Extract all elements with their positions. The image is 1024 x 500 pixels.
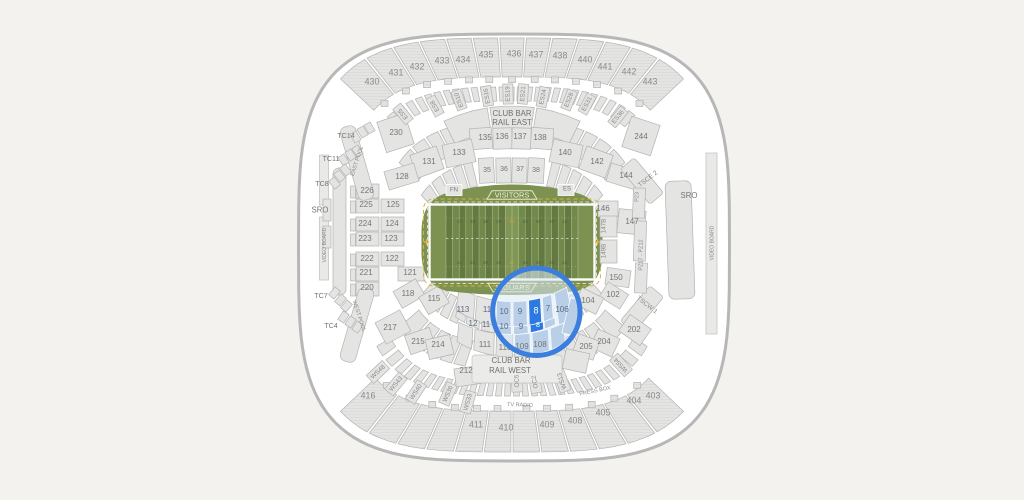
svg-text:409: 409	[540, 419, 555, 429]
svg-text:12: 12	[469, 319, 478, 328]
svg-text:20: 20	[470, 219, 476, 224]
svg-text:38: 38	[532, 167, 540, 174]
svg-text:VISITORS: VISITORS	[495, 191, 530, 200]
svg-text:411: 411	[469, 419, 483, 429]
svg-text:RAIL EAST: RAIL EAST	[492, 118, 532, 127]
svg-text:P23: P23	[634, 192, 640, 202]
svg-text:9: 9	[519, 322, 524, 331]
svg-text:223: 223	[358, 234, 372, 243]
svg-text:224: 224	[358, 219, 372, 228]
svg-text:443: 443	[643, 76, 658, 86]
svg-text:416: 416	[361, 390, 376, 400]
svg-text:10: 10	[500, 322, 509, 331]
svg-text:123: 123	[384, 234, 398, 243]
svg-text:102: 102	[606, 290, 620, 299]
svg-text:7: 7	[546, 304, 551, 313]
svg-text:202: 202	[627, 325, 641, 334]
svg-text:106: 106	[555, 305, 569, 314]
svg-text:SRO: SRO	[312, 206, 329, 215]
svg-text:147B: 147B	[601, 219, 608, 234]
svg-text:405: 405	[596, 407, 611, 417]
svg-text:149B: 149B	[601, 244, 608, 259]
svg-text:440: 440	[578, 54, 593, 64]
svg-text:436: 436	[507, 48, 522, 58]
svg-text:146: 146	[596, 204, 610, 213]
svg-text:10: 10	[562, 260, 568, 265]
svg-text:226: 226	[360, 186, 374, 195]
svg-text:408: 408	[568, 415, 583, 425]
svg-text:104: 104	[581, 296, 595, 305]
svg-text:ES19: ES19	[504, 86, 511, 102]
svg-text:118: 118	[402, 289, 415, 298]
svg-text:147: 147	[625, 217, 639, 226]
svg-text:215: 215	[411, 337, 425, 346]
svg-text:8: 8	[536, 322, 540, 329]
svg-text:10: 10	[457, 219, 463, 224]
svg-text:VIDEO BOARD: VIDEO BOARD	[322, 227, 328, 262]
svg-text:30: 30	[536, 219, 542, 224]
svg-text:230: 230	[389, 128, 403, 137]
svg-text:442: 442	[622, 66, 637, 76]
svg-text:204: 204	[597, 337, 611, 346]
svg-text:TC7: TC7	[314, 291, 328, 300]
svg-text:36: 36	[500, 166, 508, 173]
svg-text:144: 144	[619, 171, 633, 180]
svg-text:430: 430	[365, 76, 380, 86]
svg-text:PZ17 - PZ12: PZ17 - PZ12	[638, 239, 644, 270]
svg-text:205: 205	[579, 342, 593, 351]
svg-text:TV RADIO: TV RADIO	[507, 402, 534, 409]
svg-text:125: 125	[386, 200, 400, 209]
svg-text:35: 35	[483, 167, 491, 174]
svg-text:30: 30	[483, 260, 489, 265]
svg-text:115: 115	[428, 294, 441, 303]
svg-text:225: 225	[359, 200, 373, 209]
svg-text:40: 40	[523, 260, 529, 265]
svg-text:150: 150	[609, 273, 623, 282]
svg-text:111: 111	[479, 340, 492, 349]
svg-text:137: 137	[513, 132, 527, 141]
svg-text:TC8: TC8	[315, 179, 329, 188]
svg-text:30: 30	[536, 260, 542, 265]
svg-text:40: 40	[496, 260, 502, 265]
svg-text:20: 20	[549, 219, 555, 224]
svg-text:OC5: OC5	[513, 374, 520, 388]
svg-text:TC14: TC14	[337, 131, 355, 140]
svg-text:10: 10	[457, 260, 463, 265]
svg-text:108: 108	[533, 340, 547, 349]
svg-text:403: 403	[646, 390, 661, 400]
svg-text:11: 11	[482, 320, 491, 329]
svg-text:222: 222	[360, 254, 374, 263]
svg-text:10: 10	[562, 219, 568, 224]
svg-text:220: 220	[360, 283, 374, 292]
svg-text:212: 212	[459, 366, 473, 375]
svg-text:433: 433	[435, 55, 450, 65]
svg-text:244: 244	[634, 132, 648, 141]
svg-text:142: 142	[590, 157, 604, 166]
svg-text:50: 50	[509, 219, 515, 224]
svg-text:435: 435	[479, 49, 494, 59]
svg-text:122: 122	[385, 254, 399, 263]
svg-text:432: 432	[410, 61, 425, 71]
svg-text:CLUB BAR: CLUB BAR	[493, 109, 532, 118]
svg-text:131: 131	[422, 157, 436, 166]
svg-text:CLUB BAR: CLUB BAR	[492, 356, 531, 365]
svg-text:217: 217	[383, 323, 397, 332]
svg-text:434: 434	[456, 54, 471, 64]
svg-text:404: 404	[627, 395, 642, 405]
svg-text:RAIL WEST: RAIL WEST	[489, 366, 531, 375]
svg-text:VIDEO BOARD: VIDEO BOARD	[709, 225, 715, 260]
svg-text:9: 9	[518, 307, 523, 316]
svg-text:20: 20	[470, 260, 476, 265]
svg-text:438: 438	[553, 50, 568, 60]
svg-text:40: 40	[523, 219, 529, 224]
svg-text:214: 214	[431, 340, 445, 349]
svg-text:37: 37	[516, 166, 524, 173]
svg-text:10: 10	[500, 307, 509, 316]
svg-text:221: 221	[359, 268, 373, 277]
svg-text:138: 138	[533, 133, 547, 142]
svg-text:113: 113	[457, 305, 470, 314]
svg-text:ES: ES	[563, 187, 571, 193]
svg-text:441: 441	[598, 61, 613, 71]
svg-text:431: 431	[389, 67, 404, 77]
svg-text:135: 135	[478, 133, 492, 142]
svg-text:40: 40	[496, 219, 502, 224]
svg-text:140: 140	[558, 148, 572, 157]
svg-text:124: 124	[385, 219, 399, 228]
svg-text:50: 50	[509, 260, 515, 265]
svg-text:410: 410	[499, 422, 514, 432]
svg-text:128: 128	[395, 172, 409, 181]
svg-text:SRO: SRO	[681, 191, 698, 200]
svg-text:133: 133	[452, 148, 466, 157]
svg-text:8: 8	[533, 305, 538, 315]
svg-text:136: 136	[495, 132, 509, 141]
svg-text:121: 121	[403, 268, 417, 277]
svg-text:FN: FN	[450, 188, 458, 194]
svg-text:437: 437	[529, 49, 544, 59]
svg-text:TC4: TC4	[324, 321, 338, 330]
svg-text:20: 20	[549, 260, 555, 265]
svg-text:TC11: TC11	[322, 154, 339, 163]
svg-text:30: 30	[483, 219, 489, 224]
svg-text:ES21: ES21	[519, 86, 527, 102]
